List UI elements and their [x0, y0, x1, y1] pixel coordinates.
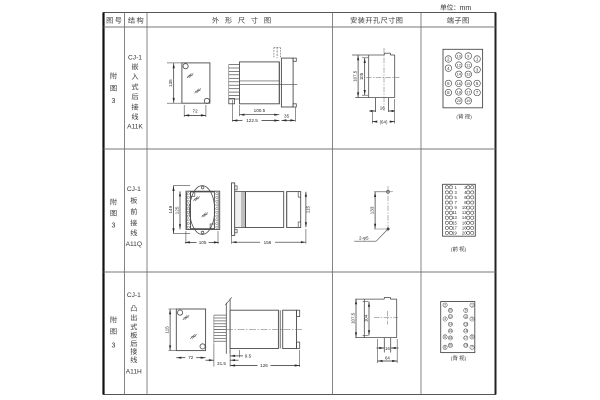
svg-text:3: 3 — [471, 317, 473, 321]
svg-text:): ) — [465, 247, 467, 253]
svg-text:115: 115 — [165, 326, 170, 334]
svg-text:(64): (64) — [380, 119, 388, 124]
svg-text:115: 115 — [305, 205, 310, 213]
svg-text:72: 72 — [193, 108, 199, 113]
svg-text:17: 17 — [464, 336, 468, 340]
svg-text:10: 10 — [449, 309, 453, 313]
svg-text:16: 16 — [449, 329, 453, 333]
svg-text:7: 7 — [471, 346, 473, 350]
svg-text:20: 20 — [449, 344, 453, 348]
svg-text:19: 19 — [452, 230, 457, 235]
svg-text:11: 11 — [466, 63, 471, 68]
svg-text:2: 2 — [444, 303, 446, 307]
svg-text:12: 12 — [449, 315, 453, 319]
svg-text:107.5: 107.5 — [350, 312, 355, 324]
svg-text:105: 105 — [199, 240, 207, 245]
svg-text:9: 9 — [465, 309, 467, 313]
svg-text:126: 126 — [260, 363, 268, 368]
svg-text:6: 6 — [444, 335, 446, 339]
svg-text:13: 13 — [466, 72, 471, 77]
svg-text:122.5: 122.5 — [246, 118, 258, 123]
svg-text:3: 3 — [112, 223, 116, 230]
svg-text:13: 13 — [464, 322, 468, 326]
svg-text:CJ-1: CJ-1 — [127, 186, 141, 193]
svg-text:31.5: 31.5 — [217, 361, 226, 366]
svg-text:149: 149 — [168, 205, 173, 213]
svg-text:A11K: A11K — [127, 124, 143, 131]
svg-text:105: 105 — [359, 72, 364, 80]
svg-text:(: ( — [451, 247, 453, 253]
svg-text:2-φ5: 2-φ5 — [359, 236, 369, 241]
svg-text:17: 17 — [466, 89, 471, 94]
svg-text:6: 6 — [447, 81, 450, 86]
svg-text:19: 19 — [466, 98, 471, 103]
svg-text:35: 35 — [284, 114, 290, 119]
svg-text:7: 7 — [476, 90, 479, 95]
svg-text:9.5: 9.5 — [245, 354, 252, 359]
svg-text:8: 8 — [444, 346, 446, 350]
svg-text:100.5: 100.5 — [254, 108, 266, 113]
svg-text:): ) — [470, 114, 472, 120]
svg-text:64: 64 — [385, 355, 390, 360]
svg-text:3: 3 — [112, 343, 116, 350]
svg-text:14: 14 — [449, 322, 453, 326]
svg-text:A11Q: A11Q — [126, 241, 142, 248]
svg-text:18: 18 — [449, 336, 453, 340]
svg-text:18: 18 — [457, 89, 462, 94]
svg-text:133: 133 — [370, 206, 375, 214]
svg-text:10: 10 — [457, 53, 462, 58]
svg-text:4: 4 — [444, 317, 446, 321]
svg-text:9: 9 — [467, 53, 470, 58]
svg-text:5: 5 — [476, 81, 479, 86]
svg-text:16: 16 — [385, 346, 390, 351]
svg-text:16: 16 — [457, 81, 462, 86]
svg-text:4: 4 — [447, 66, 450, 71]
svg-text:2: 2 — [447, 57, 450, 62]
svg-text:15: 15 — [466, 81, 471, 86]
svg-text:11: 11 — [464, 315, 468, 319]
svg-text:3: 3 — [112, 98, 116, 105]
svg-text:CJ-1: CJ-1 — [127, 292, 141, 299]
svg-text:): ) — [465, 356, 467, 362]
svg-text:(: ( — [456, 114, 458, 120]
svg-text:72: 72 — [188, 355, 194, 360]
svg-text:mm: mm — [460, 5, 472, 12]
svg-text:125: 125 — [174, 206, 179, 214]
svg-text:5: 5 — [471, 335, 473, 339]
svg-text:CJ-1: CJ-1 — [128, 54, 142, 61]
svg-text:12: 12 — [457, 63, 462, 68]
svg-text:135: 135 — [168, 79, 173, 87]
svg-text:104: 104 — [363, 314, 368, 322]
svg-text:8: 8 — [447, 90, 450, 95]
svg-text:20: 20 — [457, 98, 462, 103]
svg-text:19: 19 — [464, 344, 468, 348]
svg-text:14: 14 — [457, 72, 462, 77]
svg-text:156: 156 — [264, 240, 272, 245]
svg-text:16: 16 — [380, 106, 385, 111]
svg-text:(: ( — [451, 356, 453, 362]
svg-text:20: 20 — [462, 230, 467, 235]
svg-text:107.5: 107.5 — [353, 70, 358, 82]
svg-text:1: 1 — [476, 57, 479, 62]
svg-text:15: 15 — [464, 329, 468, 333]
svg-text:1: 1 — [471, 303, 473, 307]
svg-text:A11H: A11H — [126, 369, 142, 376]
svg-text:3: 3 — [476, 67, 479, 72]
